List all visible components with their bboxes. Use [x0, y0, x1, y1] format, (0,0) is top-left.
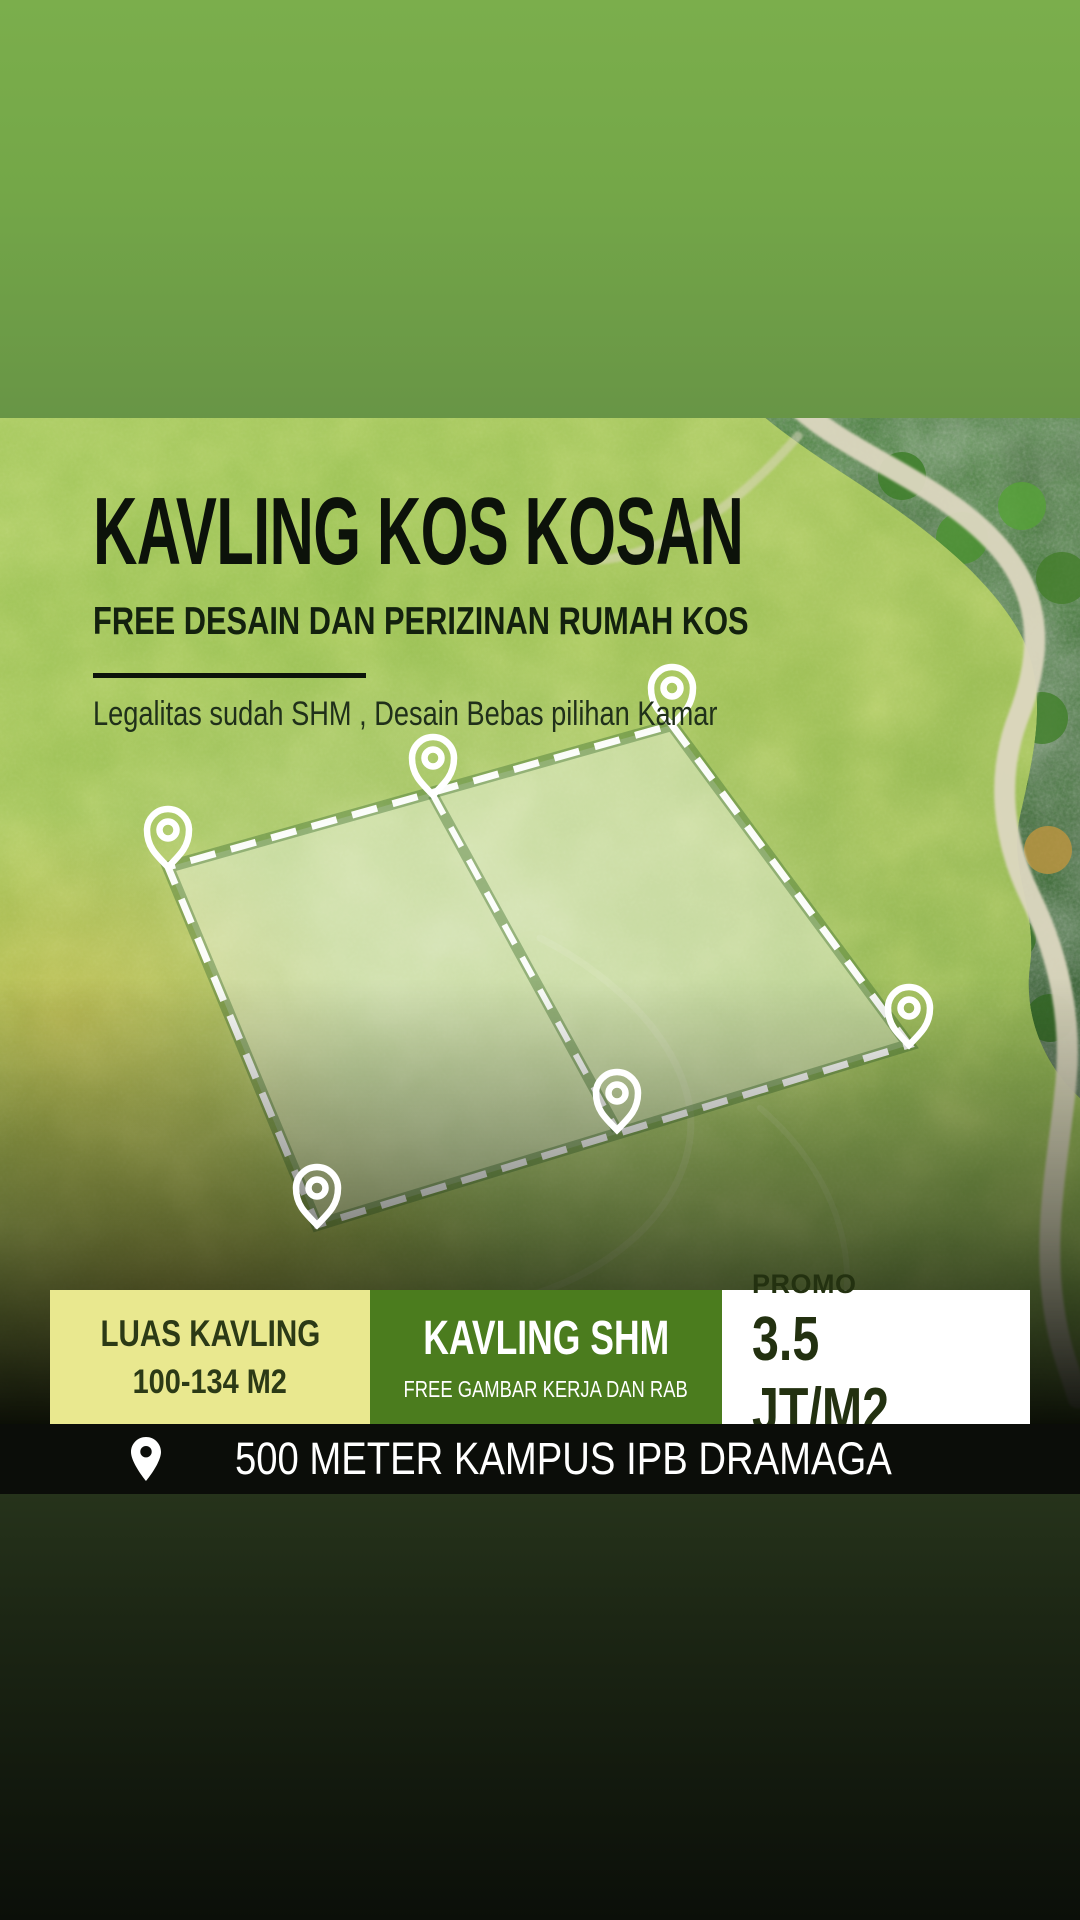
- bottom-gradient-band: [0, 1494, 1080, 1920]
- headline-block: KAVLING KOS KOSAN FREE DESAIN DAN PERIZI…: [93, 484, 1080, 733]
- location-text: 500 METER KAMPUS IPB DRAMAGA: [235, 1433, 892, 1485]
- info-box-promo: PROMO 3.5 JT/M2: [722, 1290, 1030, 1424]
- info-box-value: 100-134 M2: [133, 1363, 287, 1402]
- info-box-label: LUAS KAVLING: [100, 1313, 320, 1355]
- info-box-kavling-shm: KAVLING SHM FREE GAMBAR KERJA DAN RAB: [370, 1290, 722, 1424]
- top-gradient-band: [0, 0, 1080, 418]
- poster-title: KAVLING KOS KOSAN: [93, 484, 743, 580]
- info-box-label: KAVLING SHM: [423, 1311, 669, 1366]
- location-bar: 500 METER KAMPUS IPB DRAMAGA: [0, 1424, 1080, 1494]
- poster-tagline: Legalitas sudah SHM , Desain Bebas pilih…: [93, 696, 717, 733]
- info-box-label: PROMO: [752, 1269, 857, 1300]
- poster-subtitle: FREE DESAIN DAN PERIZINAN RUMAH KOS: [93, 602, 749, 641]
- aerial-photo: KAVLING KOS KOSAN FREE DESAIN DAN PERIZI…: [0, 418, 1080, 1424]
- poster-canvas: KAVLING KOS KOSAN FREE DESAIN DAN PERIZI…: [0, 0, 1080, 1920]
- headline-divider: [93, 673, 366, 678]
- info-box-luas-kavling: LUAS KAVLING 100-134 M2: [50, 1290, 370, 1424]
- info-box-value: FREE GAMBAR KERJA DAN RAB: [404, 1376, 688, 1403]
- location-pin-icon: [131, 1437, 161, 1481]
- info-box-row: LUAS KAVLING 100-134 M2 KAVLING SHM FREE…: [50, 1290, 1030, 1424]
